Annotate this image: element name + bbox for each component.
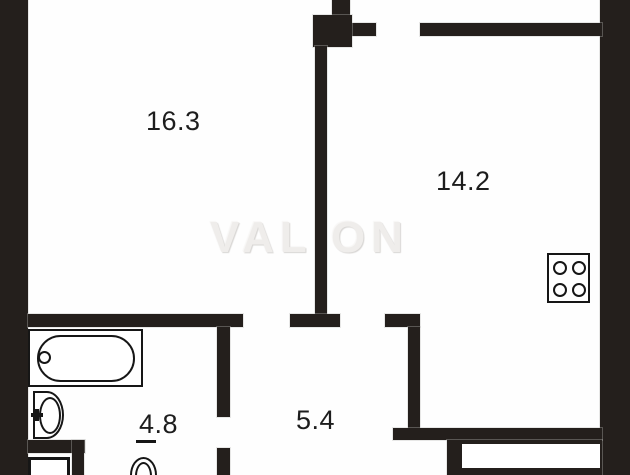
wall-bathroom-top [28, 314, 243, 327]
wall-hall-stub [385, 314, 420, 327]
stove-burner [572, 283, 586, 297]
wall-bathroom-right-lower [217, 448, 230, 475]
sink-tap-icon [35, 409, 39, 421]
bathtub-drain [38, 351, 51, 364]
wall-center-foot [290, 314, 340, 327]
stove-burner [572, 261, 586, 275]
wall-left [0, 0, 28, 475]
wall-bathroom-inner-vertical [72, 440, 84, 475]
shower-tray-icon [28, 457, 70, 475]
bathtub-basin [37, 335, 135, 382]
toilet-tank-line [136, 440, 156, 443]
wall-top [420, 23, 602, 36]
wall-bathroom-right-upper [217, 327, 230, 417]
wall-entry-stub [352, 23, 376, 36]
room-area-label: 16.3 [146, 108, 201, 135]
watermark-text: VALION [210, 213, 409, 263]
room-area-label: 4.8 [139, 411, 178, 438]
room-area-label: 14.2 [436, 168, 491, 195]
wall-right [600, 0, 630, 475]
balcony-opening [462, 444, 600, 468]
wall-center-partition [315, 46, 327, 316]
floor-plan: VALION 16.3 14.2 4.8 5.4 [0, 0, 630, 475]
wall-pillar [313, 15, 352, 47]
stove-burner [553, 261, 567, 275]
wall-room-bottom [393, 428, 602, 440]
stove-icon [547, 253, 590, 303]
wall-pillar-cap [332, 0, 350, 16]
room-area-label: 5.4 [296, 407, 335, 434]
wall-hall-right [408, 327, 420, 433]
stove-burner [553, 283, 567, 297]
